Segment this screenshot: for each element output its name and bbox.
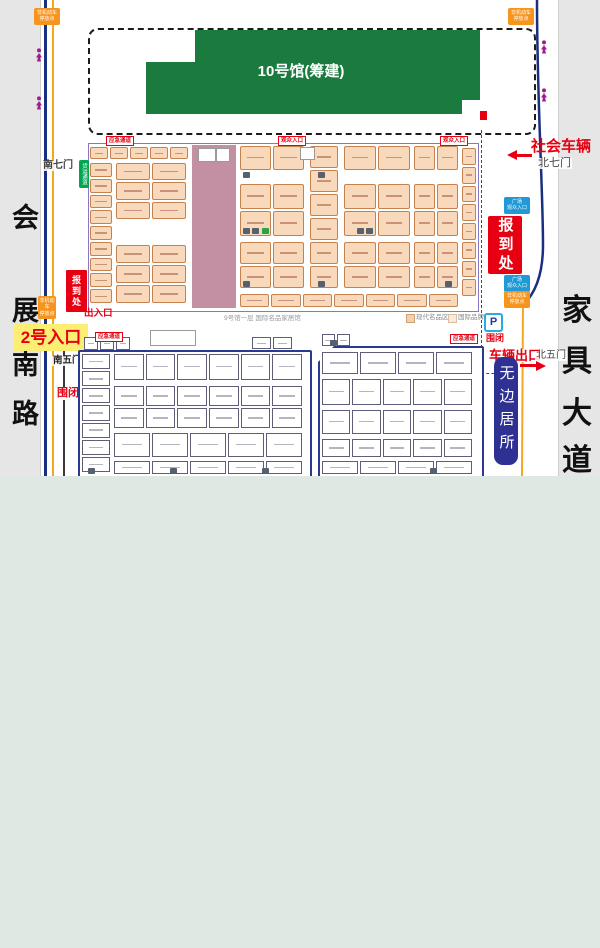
booth	[378, 146, 410, 170]
booth	[444, 410, 472, 434]
booth-zone	[114, 354, 302, 380]
booth	[116, 245, 150, 263]
booth-zone	[240, 294, 458, 307]
pedestrian-icon	[539, 88, 549, 102]
booth	[310, 242, 338, 264]
booth	[413, 439, 441, 457]
bike-parking-tag: 非机动车停放点	[34, 8, 60, 25]
booth	[436, 461, 472, 474]
booth-zone	[322, 461, 472, 474]
booth	[322, 379, 350, 405]
booth-zone	[82, 354, 110, 472]
booth	[383, 410, 411, 434]
booth	[334, 294, 363, 307]
booth	[114, 433, 150, 457]
booth	[177, 386, 207, 406]
booth-zone	[252, 337, 292, 349]
booth	[146, 354, 176, 380]
booth	[414, 211, 435, 236]
booth	[82, 388, 110, 403]
booth	[437, 211, 458, 236]
pedestrian-icon	[539, 40, 549, 54]
booth	[366, 294, 395, 307]
booth	[90, 147, 108, 159]
booth	[177, 354, 207, 380]
booth	[209, 408, 239, 428]
booth-zone	[90, 163, 112, 303]
booth-zone	[344, 184, 410, 236]
booth	[116, 182, 150, 199]
plaza-entrance-tag-line: 观众入口	[504, 205, 530, 211]
booth	[228, 461, 264, 474]
booth	[273, 242, 304, 264]
booth	[82, 457, 110, 472]
booth	[90, 289, 112, 303]
hall9-caption: 9号馆一层 国际名品家居馆	[224, 316, 301, 323]
freight-passage-tag: 货运通道	[79, 160, 89, 188]
booth	[110, 147, 128, 159]
booth-zone	[344, 146, 410, 170]
emergency-passage-tag: 应急通道	[450, 334, 478, 344]
booth	[310, 194, 338, 216]
booth-zone	[90, 147, 188, 159]
visitor-entrance-tag: 观众入口	[440, 136, 468, 146]
escalator-icon	[150, 330, 196, 346]
booth	[152, 265, 186, 283]
street-right-char-4: 道	[562, 446, 592, 476]
booth	[398, 461, 434, 474]
booth	[90, 163, 112, 177]
booth	[397, 294, 426, 307]
legend-swatch-intl	[448, 314, 457, 323]
booth	[413, 410, 441, 434]
pedestrian-icon	[34, 96, 44, 110]
hall9-atrium-block	[192, 145, 236, 308]
booth	[146, 386, 176, 406]
bike-parking-tag-line: 停放点	[38, 311, 56, 317]
booth	[344, 184, 376, 209]
booth	[114, 386, 144, 406]
booth	[116, 163, 150, 180]
booth	[82, 440, 110, 455]
bike-parking-tag: 非机动车停放点	[508, 8, 534, 25]
booth	[114, 408, 144, 428]
booth	[90, 258, 112, 272]
booth	[116, 285, 150, 303]
booth	[414, 184, 435, 209]
booth	[383, 439, 411, 457]
emergency-passage-tag: 应急通道	[106, 136, 134, 146]
booth	[437, 184, 458, 209]
booth	[90, 226, 112, 240]
plaza-entrance-tag-line: 观众入口	[504, 283, 530, 289]
vehicle-exit-arrow-tail	[520, 364, 536, 367]
booth	[209, 354, 239, 380]
entrance2-label: 2号入口	[21, 329, 81, 346]
booth	[414, 266, 435, 288]
venue-map: 会 展 南 路 家 具 大 道 10号馆(筹建) 社会车辆 北七门 南七门 报到…	[0, 0, 600, 948]
booth	[462, 204, 476, 221]
booth-zone	[114, 433, 302, 457]
booth	[90, 273, 112, 287]
booth-zone	[322, 439, 472, 457]
bike-parking-tag-line: 停放点	[508, 16, 534, 22]
booth	[378, 184, 410, 209]
booth	[190, 461, 226, 474]
booth	[352, 379, 380, 405]
booth	[90, 242, 112, 256]
restroom-icon	[170, 468, 177, 474]
booth-zone	[322, 352, 472, 374]
legend-label-modern: 现代名品区	[416, 315, 449, 322]
booth	[252, 337, 271, 349]
booth	[240, 184, 271, 209]
booth	[228, 433, 264, 457]
booth-zone	[114, 386, 302, 428]
booth	[414, 146, 435, 170]
booth	[462, 242, 476, 259]
booth	[462, 261, 476, 278]
booth	[82, 371, 110, 386]
booth	[152, 182, 186, 199]
booth-zone	[116, 163, 186, 219]
booth	[344, 146, 376, 170]
booth	[150, 147, 168, 159]
booth	[429, 294, 458, 307]
booth	[378, 242, 410, 264]
hall10-label: 10号馆(筹建)	[206, 60, 396, 81]
booth	[272, 408, 302, 428]
booth	[398, 352, 434, 374]
booth	[436, 352, 472, 374]
booth	[344, 242, 376, 264]
restroom-icon	[262, 468, 269, 474]
plaza-entrance-tag: 广场观众入口	[504, 197, 530, 214]
booth	[462, 279, 476, 296]
bike-parking-tag: 非机动车停放点	[504, 291, 530, 308]
booth	[266, 461, 302, 474]
booth	[240, 294, 269, 307]
booth	[352, 410, 380, 434]
booth	[271, 294, 300, 307]
booth	[360, 461, 396, 474]
booth	[152, 245, 186, 263]
escalator-icon	[216, 148, 230, 162]
booth	[241, 354, 271, 380]
booth-zone	[116, 245, 186, 303]
booth	[82, 354, 110, 369]
gate-south7-label: 南七门	[42, 161, 74, 171]
booth	[360, 352, 396, 374]
booth	[344, 266, 376, 288]
restroom-icon	[430, 468, 437, 474]
booth-zone	[344, 242, 410, 288]
booth	[152, 285, 186, 303]
booth	[303, 294, 332, 307]
booth	[190, 433, 226, 457]
restroom-icon	[318, 172, 325, 178]
facility-icon	[262, 228, 269, 234]
bike-parking-tag-line: 非机动车	[38, 298, 56, 311]
gate-north7-label: 北七门	[537, 158, 572, 169]
booth	[273, 184, 304, 209]
social-vehicles-arrow-tail	[516, 154, 532, 157]
restroom-icon	[366, 228, 373, 234]
booth	[152, 163, 186, 180]
closed-dashed-line	[481, 130, 482, 373]
boundless-home-banner: 无边居所	[494, 357, 518, 465]
booth	[462, 186, 476, 203]
booth	[444, 379, 472, 405]
booth	[152, 433, 188, 457]
booth	[82, 405, 110, 420]
booth-zone	[114, 461, 302, 474]
booth	[322, 352, 358, 374]
booth	[352, 439, 380, 457]
restroom-icon	[445, 281, 452, 287]
booth	[462, 167, 476, 184]
booth	[462, 148, 476, 165]
booth	[90, 210, 112, 224]
entry-exit-label: 出入口	[84, 309, 113, 319]
booth	[130, 147, 148, 159]
booth-zone	[414, 184, 458, 236]
visitor-entrance-tag: 观众入口	[278, 136, 306, 146]
map-canvas: 会 展 南 路 家 具 大 道 10号馆(筹建) 社会车辆 北七门 南七门 报到…	[0, 0, 600, 476]
booth	[146, 408, 176, 428]
street-right-char-3: 大	[562, 399, 592, 429]
restroom-icon	[357, 228, 364, 234]
booth	[378, 266, 410, 288]
booth	[240, 146, 271, 170]
booth	[241, 386, 271, 406]
booth	[170, 147, 188, 159]
gate-marker-icon	[480, 111, 487, 120]
registration-small-box: 报到处	[66, 270, 87, 312]
plaza-entrance-tag: 广场观众入口	[504, 275, 530, 292]
booth-zone	[322, 379, 472, 405]
closed-right-label: 围闭	[486, 334, 504, 343]
vehicle-exit-arrow-icon	[536, 361, 546, 371]
booth	[209, 386, 239, 406]
booth	[413, 379, 441, 405]
entrance2-highlight: 2号入口	[14, 324, 88, 351]
restroom-icon	[243, 172, 250, 178]
booth	[462, 223, 476, 240]
booth	[177, 408, 207, 428]
street-left-char-2: 展	[12, 298, 39, 325]
booth	[273, 211, 304, 236]
street-left-char-1: 会	[12, 205, 39, 232]
booth	[114, 354, 144, 380]
booth	[322, 410, 350, 434]
restroom-icon	[243, 228, 250, 234]
booth	[444, 439, 472, 457]
booth	[273, 337, 292, 349]
booth	[437, 242, 458, 264]
street-left-char-3: 南	[12, 352, 39, 379]
booth	[273, 266, 304, 288]
booth	[240, 242, 271, 264]
booth	[116, 265, 150, 283]
booth	[266, 433, 302, 457]
legend-swatch-modern	[406, 314, 415, 323]
booth	[114, 461, 150, 474]
booth	[90, 179, 112, 193]
registration-big-box: 报到处	[488, 216, 522, 274]
booth	[437, 146, 458, 170]
bike-parking-tag-line: 停放点	[34, 16, 60, 22]
booth	[337, 334, 350, 346]
bike-parking-tag: 非机动车停放点	[38, 296, 56, 319]
booth	[322, 461, 358, 474]
booth	[272, 386, 302, 406]
booth-zone	[322, 410, 472, 434]
restroom-icon	[318, 281, 325, 287]
restroom-icon	[243, 281, 250, 287]
booth	[310, 218, 338, 240]
social-vehicles-label: 社会车辆	[531, 139, 591, 154]
booth	[272, 354, 302, 380]
restroom-icon	[88, 468, 95, 474]
street-right-char-1: 家	[562, 296, 592, 326]
restroom-icon	[330, 340, 337, 346]
booth	[378, 211, 410, 236]
closed-left-label: 围闭	[56, 387, 80, 400]
booth-zone	[240, 146, 304, 170]
booth	[116, 202, 150, 219]
bike-parking-tag-line: 停放点	[504, 299, 530, 305]
escalator-icon	[300, 147, 315, 160]
escalator-icon	[198, 148, 216, 162]
booth	[241, 408, 271, 428]
street-left-char-4: 路	[12, 401, 39, 428]
booth	[152, 202, 186, 219]
pedestrian-icon	[34, 48, 44, 62]
booth-zone	[414, 146, 458, 170]
booth	[383, 379, 411, 405]
parking-icon: P	[484, 313, 503, 332]
restroom-icon	[252, 228, 259, 234]
gate-north5-label: 北五门	[535, 351, 567, 361]
booth-zone	[462, 148, 476, 296]
booth	[414, 242, 435, 264]
booth	[90, 195, 112, 209]
booth	[82, 423, 110, 438]
booth	[322, 439, 350, 457]
emergency-passage-tag: 应急通道	[95, 332, 123, 342]
booth-zone	[310, 146, 338, 288]
